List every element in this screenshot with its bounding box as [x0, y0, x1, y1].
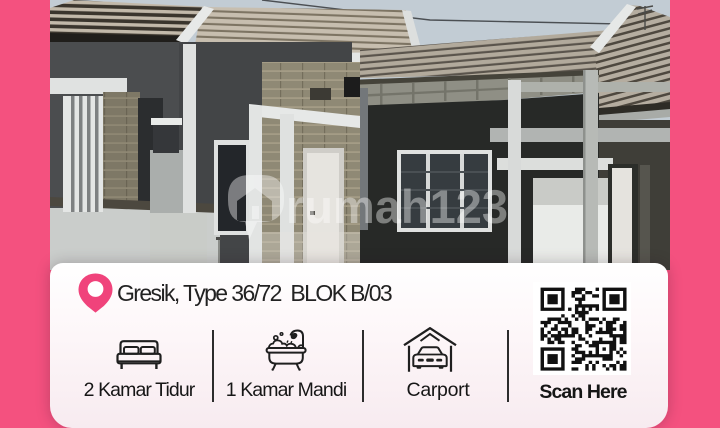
- svg-text:rumah123: rumah123: [286, 180, 508, 233]
